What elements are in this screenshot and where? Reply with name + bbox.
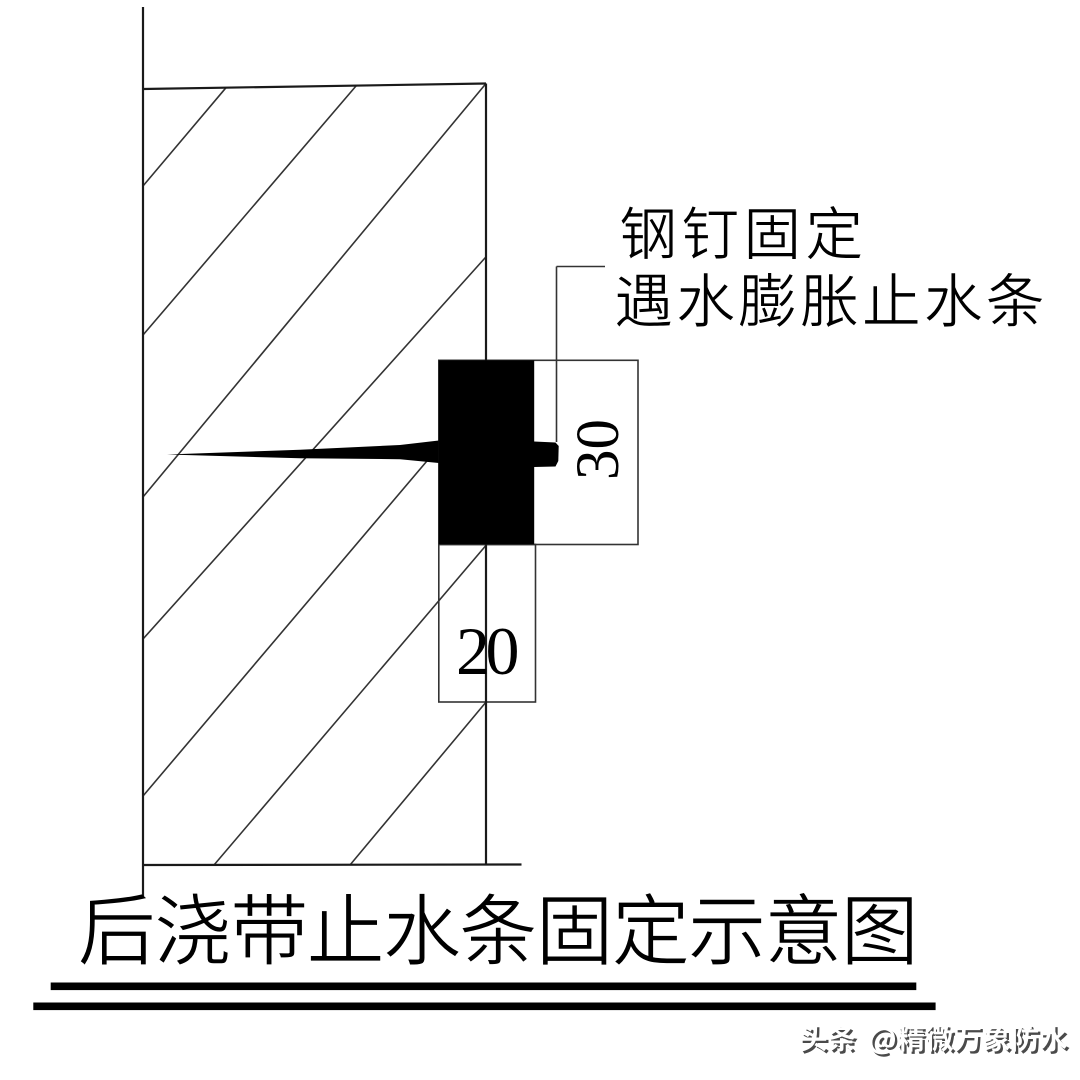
svg-text:30: 30 bbox=[565, 419, 632, 480]
svg-text:20: 20 bbox=[456, 613, 518, 689]
